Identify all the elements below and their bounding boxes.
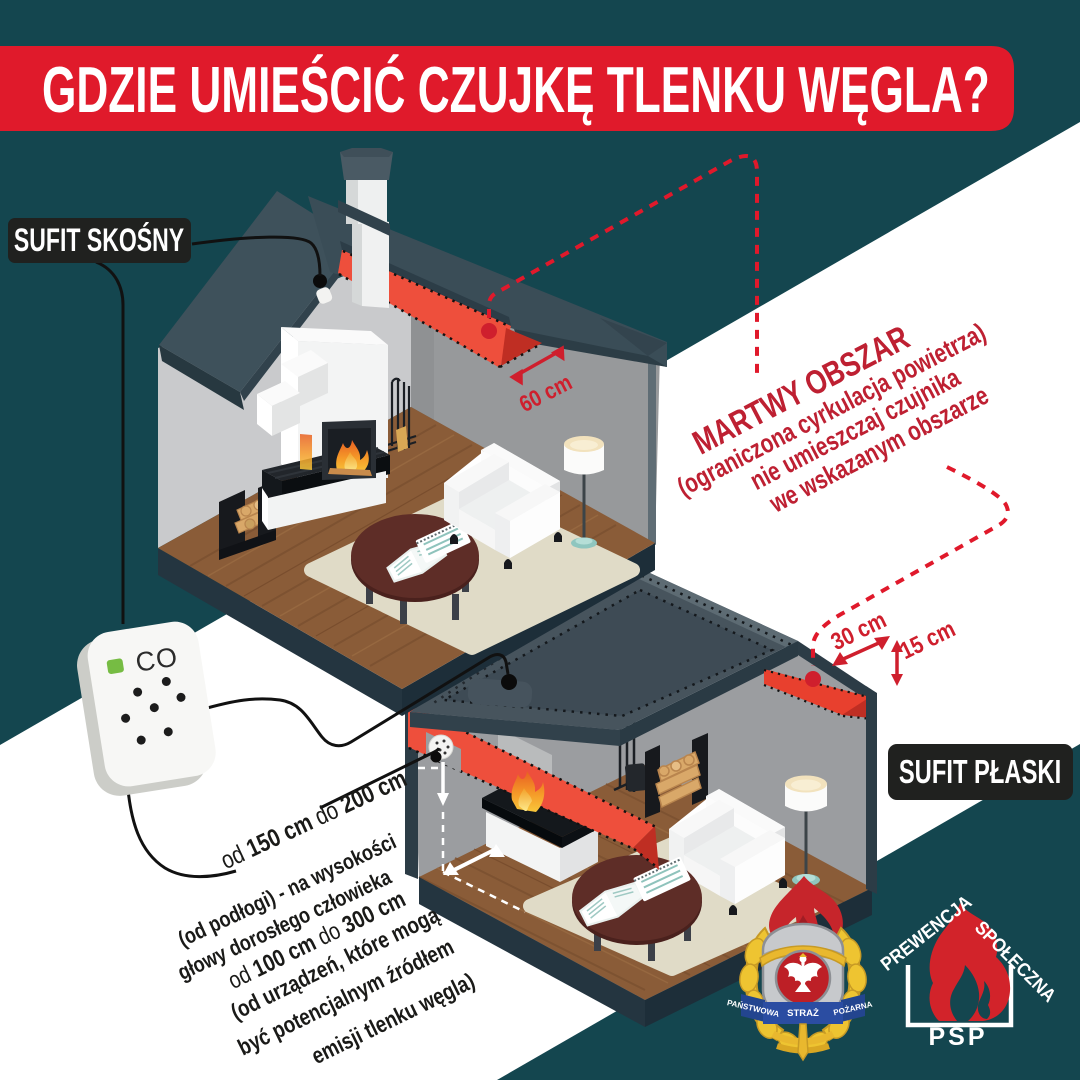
svg-text:SUFIT PŁASKI: SUFIT PŁASKI: [899, 754, 1061, 791]
svg-text:GDZIE UMIEŚCIĆ CZUJKĘ TLENKU W: GDZIE UMIEŚCIĆ CZUJKĘ TLENKU WĘGLA?: [42, 54, 990, 127]
svg-text:STRAŻ: STRAŻ: [787, 1008, 819, 1019]
svg-text:PSP: PSP: [928, 1023, 987, 1051]
svg-text:SUFIT SKOŚNY: SUFIT SKOŚNY: [14, 222, 185, 258]
